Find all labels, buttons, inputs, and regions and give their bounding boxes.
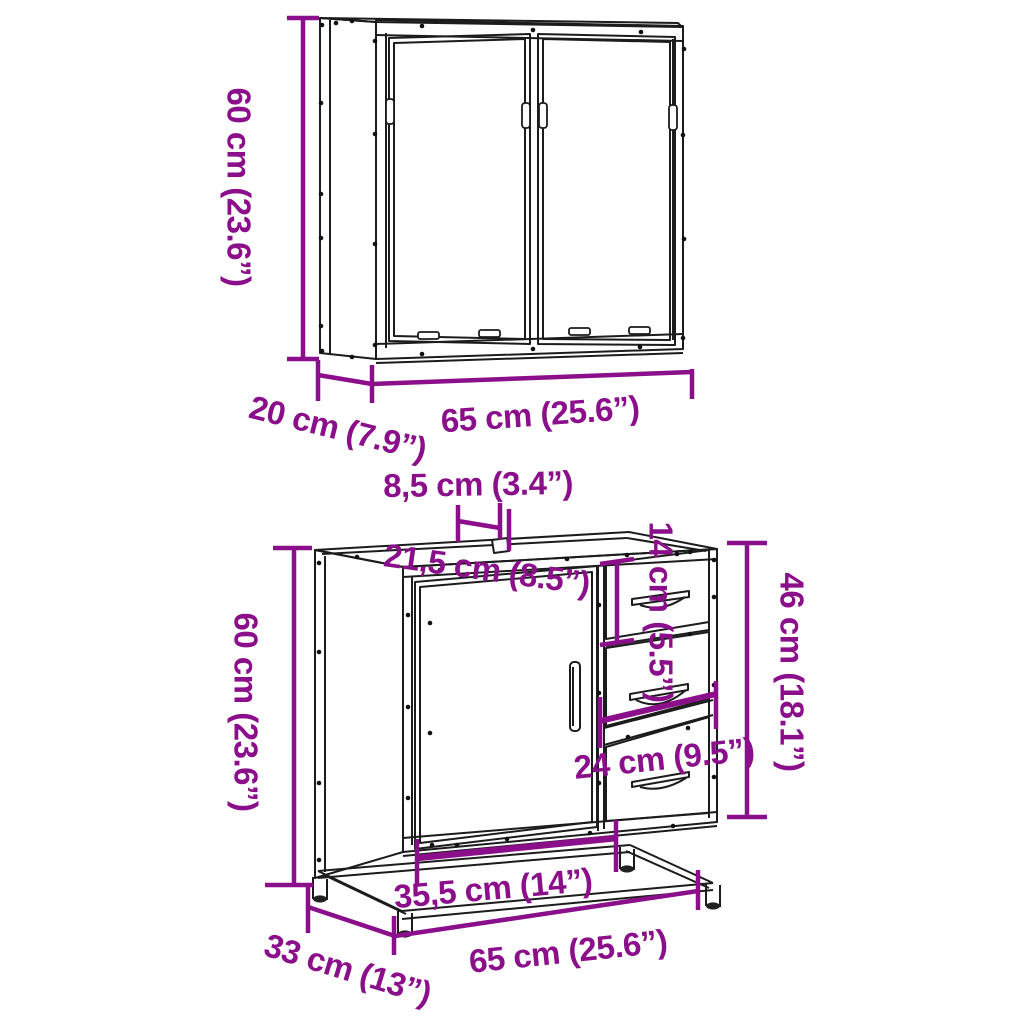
vanity-height-label: 60 cm (23.6”) — [230, 613, 263, 812]
vanity-sink-hole-depth-label: 8,5 cm (3.4”) — [383, 466, 573, 502]
vanity-top-drawer-height-label: 14 cm (5.5”) — [645, 521, 678, 702]
mirror-cabinet-drawing — [319, 18, 687, 363]
screws — [319, 19, 687, 360]
door-handle-slots — [386, 99, 677, 339]
mirror-height-label: 60 cm (23.6”) — [223, 88, 256, 287]
vanity-drawer-section-height-label: 46 cm (18.1”) — [776, 573, 809, 772]
dimension-diagram: 60 cm (23.6”) 20 cm (7.9”) 65 cm (25.6”)… — [0, 0, 1024, 1024]
